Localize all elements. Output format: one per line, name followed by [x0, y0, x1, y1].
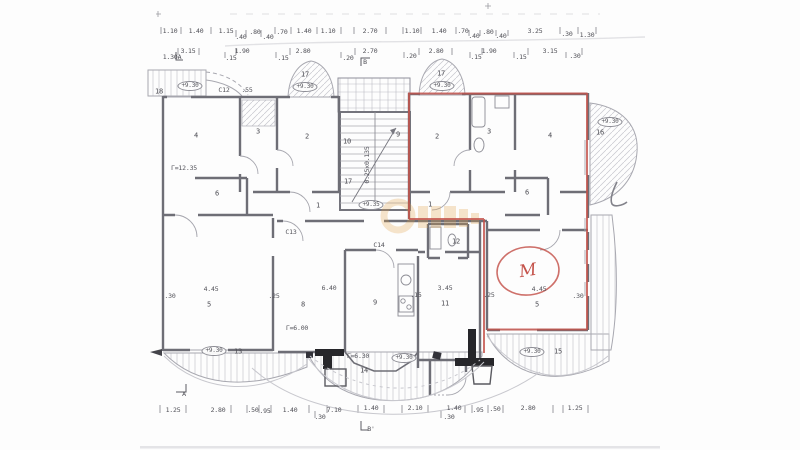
floor-plan-scan: 1.101.401.15.40.80.40.701.401.102.701.10… — [0, 0, 800, 450]
balcony-13 — [164, 353, 307, 382]
balcony-17-left — [288, 61, 334, 97]
kitchen-sink — [401, 275, 411, 285]
toilet-2 — [448, 234, 456, 246]
balcony-17-right — [419, 59, 465, 95]
shower-tray — [430, 227, 441, 249]
closet-hatch — [242, 100, 275, 126]
washbasin — [495, 96, 509, 108]
entrance-canopy-grid — [338, 78, 410, 112]
stove — [399, 296, 413, 312]
red-marker-letter: M — [518, 260, 538, 282]
watermark — [384, 202, 479, 230]
side-terrace — [591, 215, 616, 350]
toilet — [474, 138, 484, 152]
staircase — [340, 112, 410, 210]
bathtub — [472, 97, 485, 127]
floor-plan-drawing — [0, 0, 800, 450]
balcony-18 — [148, 70, 206, 96]
